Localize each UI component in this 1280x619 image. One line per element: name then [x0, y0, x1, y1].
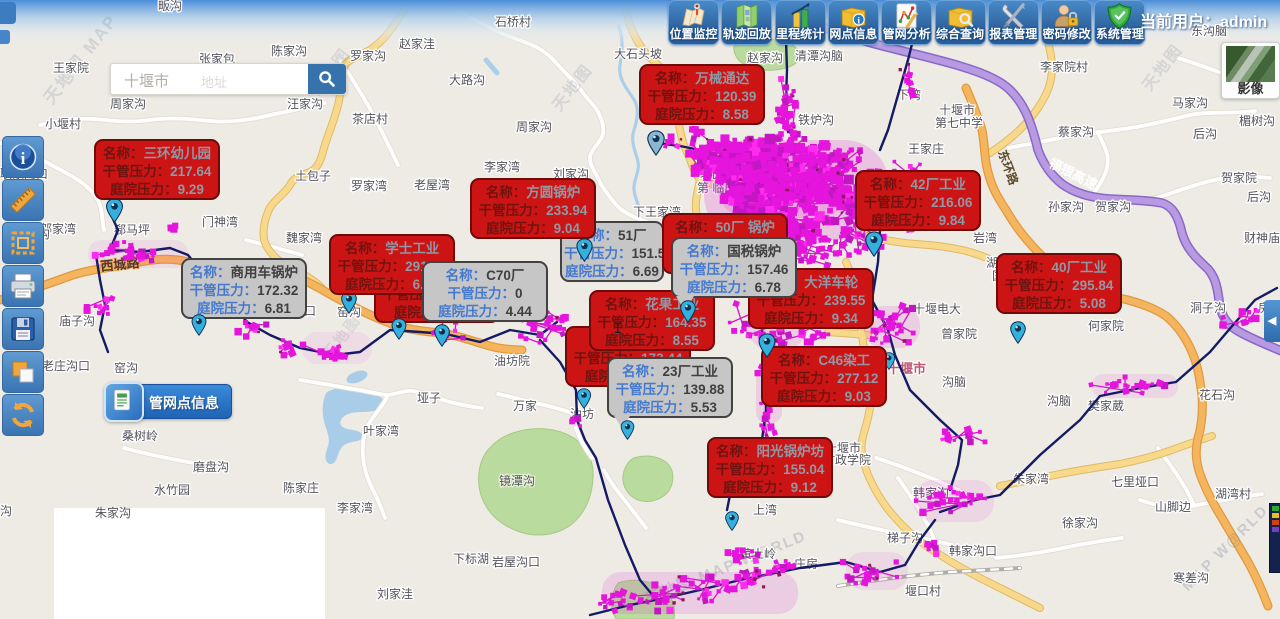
svg-text:魏家湾: 魏家湾 [286, 230, 322, 245]
svg-text:堰口村: 堰口村 [905, 584, 941, 598]
svg-text:大石头坡: 大石头坡 [614, 47, 662, 61]
svg-text:孙家沟: 孙家沟 [1048, 199, 1084, 214]
svg-text:郗马坪: 郗马坪 [114, 223, 150, 237]
svg-text:第七中学: 第七中学 [935, 115, 983, 130]
svg-text:垭子: 垭子 [417, 391, 441, 405]
svg-text:铁炉沟: 铁炉沟 [798, 113, 834, 127]
svg-text:清潭沟脑: 清潭沟脑 [795, 49, 843, 63]
svg-text:贺家沟: 贺家沟 [1095, 199, 1131, 214]
svg-text:万家: 万家 [513, 398, 537, 413]
svg-text:窑沟: 窑沟 [114, 360, 138, 375]
svg-text:陈家沟: 陈家沟 [271, 43, 307, 58]
svg-text:湖湾村: 湖湾村 [1215, 486, 1251, 501]
svg-text:李家湾: 李家湾 [337, 500, 373, 515]
svg-text:庙子沟: 庙子沟 [59, 314, 95, 328]
svg-text:十堰电大: 十堰电大 [913, 302, 961, 316]
svg-text:楣树沟: 楣树沟 [1239, 113, 1275, 128]
svg-text:花石沟: 花石沟 [1199, 387, 1235, 402]
svg-text:赵家洼: 赵家洼 [399, 36, 435, 51]
svg-text:桑树岭: 桑树岭 [122, 428, 158, 443]
svg-text:老庄沟口: 老庄沟口 [42, 358, 90, 373]
svg-text:沟: 沟 [0, 504, 12, 518]
svg-text:赵家沟: 赵家沟 [747, 50, 783, 65]
svg-text:寒差沟: 寒差沟 [1173, 570, 1209, 585]
svg-text:贺家院: 贺家院 [1221, 170, 1257, 185]
svg-text:小堰村: 小堰村 [45, 117, 81, 131]
svg-text:罗家沟: 罗家沟 [350, 48, 386, 63]
svg-text:门神湾: 门神湾 [202, 214, 238, 229]
svg-text:蔡家沟: 蔡家沟 [1058, 124, 1094, 139]
svg-text:王家院: 王家院 [53, 60, 89, 75]
svg-text:大路沟: 大路沟 [449, 72, 485, 87]
svg-text:畈沟: 畈沟 [158, 0, 182, 13]
svg-text:七里垭口: 七里垭口 [1111, 475, 1159, 489]
svg-text:上湾: 上湾 [753, 502, 777, 517]
svg-text:土包子: 土包子 [295, 169, 331, 183]
svg-text:李家湾: 李家湾 [484, 159, 520, 174]
svg-text:叶家湾: 叶家湾 [363, 423, 399, 438]
svg-text:周家沟: 周家沟 [516, 119, 552, 134]
svg-text:i: i [21, 149, 26, 168]
svg-text:汪家沟: 汪家沟 [287, 96, 323, 111]
svg-text:李家院村: 李家院村 [1040, 59, 1088, 74]
svg-text:沟脑: 沟脑 [1047, 394, 1071, 408]
svg-text:岩屋沟口: 岩屋沟口 [492, 554, 540, 569]
svg-text:石桥村: 石桥村 [495, 15, 531, 29]
svg-text:洞子沟: 洞子沟 [1190, 301, 1226, 315]
svg-text:山脚边: 山脚边 [1155, 499, 1191, 514]
svg-text:曾家院: 曾家院 [941, 326, 977, 341]
svg-text:罗家湾: 罗家湾 [351, 178, 387, 193]
svg-text:财神庙: 财神庙 [1244, 231, 1280, 245]
svg-text:十堰市: 十堰市 [939, 102, 975, 117]
svg-text:水竹园: 水竹园 [154, 483, 190, 497]
svg-text:后沟: 后沟 [1247, 190, 1271, 204]
svg-text:周家沟: 周家沟 [110, 96, 146, 111]
svg-text:马家沟: 马家沟 [1172, 95, 1208, 110]
svg-text:岩湾: 岩湾 [973, 230, 997, 245]
svg-text:茶店村: 茶店村 [352, 111, 388, 126]
svg-text:镜潭沟: 镜潭沟 [499, 473, 535, 488]
svg-text:老屋湾: 老屋湾 [414, 177, 450, 192]
svg-text:下标湖: 下标湖 [453, 551, 489, 566]
svg-text:油坊院: 油坊院 [494, 353, 530, 368]
svg-text:王家庄: 王家庄 [908, 141, 944, 156]
svg-text:徐家沟: 徐家沟 [1062, 515, 1098, 530]
svg-text:沟脑: 沟脑 [942, 375, 966, 389]
svg-text:何家院: 何家院 [1088, 318, 1124, 333]
svg-text:韩家沟口: 韩家沟口 [949, 543, 997, 558]
svg-text:后沟: 后沟 [1193, 127, 1217, 141]
svg-text:陈家庄: 陈家庄 [283, 480, 319, 495]
svg-text:刘家洼: 刘家洼 [377, 586, 413, 601]
svg-text:磨盘沟: 磨盘沟 [193, 459, 229, 474]
svg-text:朱家湾: 朱家湾 [1013, 471, 1049, 486]
